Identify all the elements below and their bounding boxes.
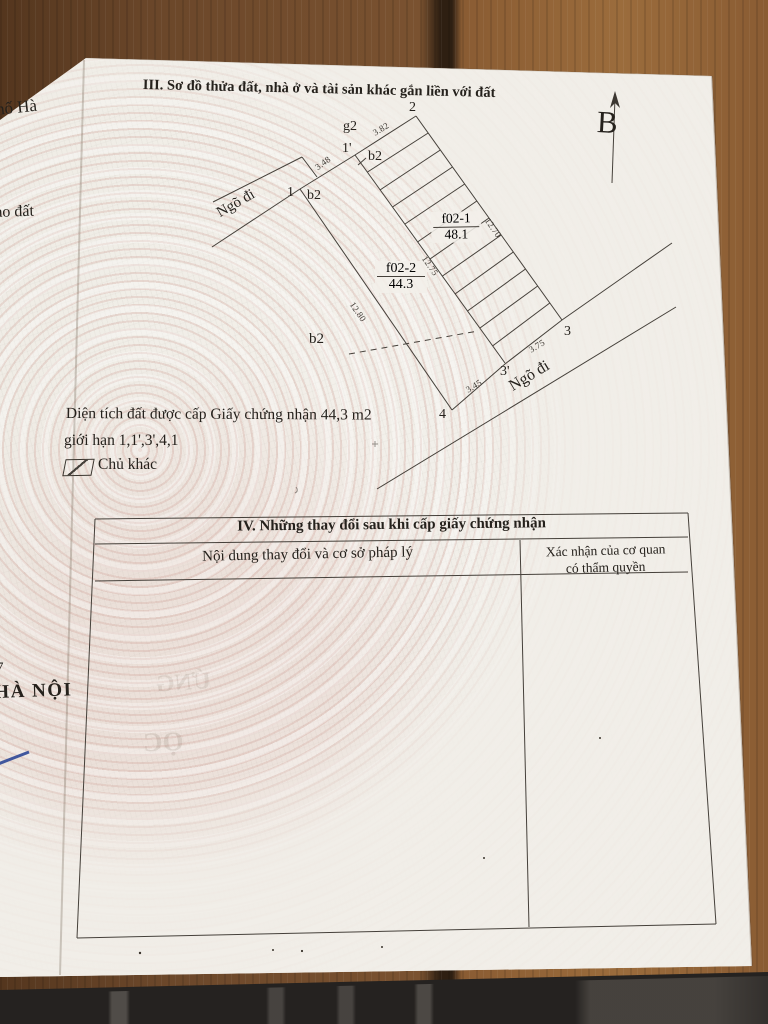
north-label: B [596, 104, 619, 141]
boundary-1-4 [300, 189, 452, 410]
plot-f02-2-id: f02-2 [377, 261, 425, 277]
road-bottom-upper [452, 243, 672, 410]
parcel-label-g2: g2 [343, 119, 357, 135]
paper-right-edge [712, 76, 752, 966]
legend-other-owner-label: Chủ khác [98, 456, 157, 474]
vertex-4: 4 [439, 407, 446, 423]
plot-f02-2-area: 44.3 [377, 277, 425, 292]
area-note-line2: giới hạn 1,1',3',4,1 [64, 432, 179, 450]
plot-f02-1-id: f02-1 [433, 211, 479, 228]
photo-of-land-certificate: III. Sơ đồ thửa đất, nhà ở và tài sản kh… [0, 0, 768, 1024]
edge-fragment-middle: ao đất [0, 203, 34, 223]
vertex-2: 2 [409, 100, 416, 116]
parcel-label-b2-mid: b2 [307, 188, 321, 204]
plot-f02-1-label: f02-1 48.1 [431, 211, 482, 243]
diagram-lines [0, 0, 768, 1024]
parcel-label-b2-low: b2 [309, 331, 324, 348]
vertex-1p: 1' [342, 141, 352, 157]
area-note-line1: Diện tích đất được cấp Giấy chứng nhận 4… [66, 405, 372, 424]
parcel-label-b2-top: b2 [368, 149, 382, 165]
road-bottom-lower [377, 307, 676, 489]
legend-hatch-swatch [62, 459, 94, 477]
paper-specks [139, 737, 601, 954]
plot-f02-2-label: f02-2 44.3 [375, 261, 427, 293]
fold-crease [60, 60, 84, 975]
dashed-line [349, 331, 478, 354]
bleed-through-text-2: ỌC [143, 726, 185, 758]
stray-marks [295, 441, 378, 493]
vertex-1: 1 [287, 185, 294, 201]
paper-top-edge [86, 58, 712, 76]
blue-pen-stroke [0, 752, 29, 764]
edge-fragment-number: 7 [0, 660, 4, 677]
bleed-through-text-1: ỨNG [155, 668, 212, 699]
vertex-3: 3 [564, 324, 571, 340]
plot-f02-1-area: 48.1 [433, 227, 479, 243]
edge-fragment-hanoi: HÀ NỘI [0, 679, 73, 704]
